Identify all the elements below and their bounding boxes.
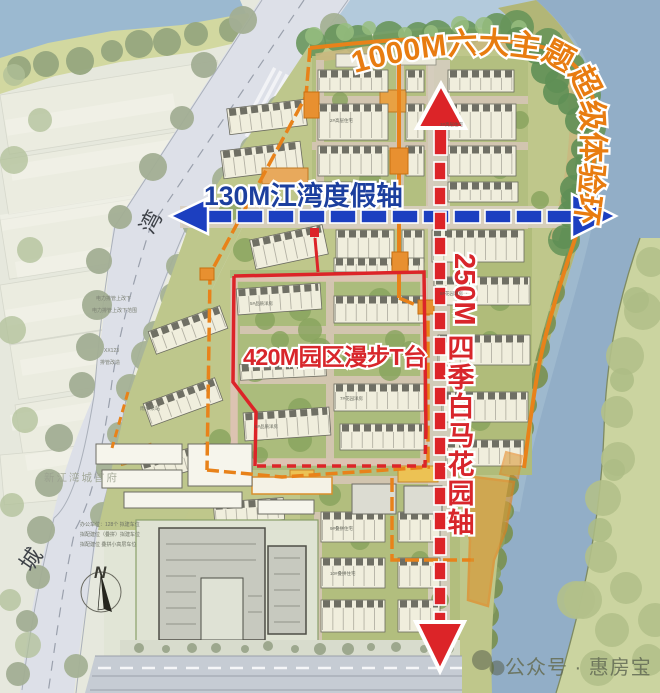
svg-text:花: 花 bbox=[448, 450, 475, 480]
svg-text:雨水泵站: 雨水泵站 bbox=[140, 405, 160, 412]
svg-text:拟配建位 叠拼小高层车位: 拟配建位 叠拼小高层车位 bbox=[80, 541, 136, 548]
svg-text:130M江湾度假轴: 130M江湾度假轴 bbox=[204, 181, 403, 211]
svg-text:9#叠拼住宅: 9#叠拼住宅 bbox=[330, 525, 354, 532]
svg-text:电力排管上改下: 电力排管上改下 bbox=[96, 295, 131, 302]
svg-text:马: 马 bbox=[448, 421, 475, 451]
svg-text:电力排管上改下范围: 电力排管上改下范围 bbox=[92, 307, 137, 314]
svg-text:2#高层住宅: 2#高层住宅 bbox=[330, 117, 354, 124]
svg-text:园: 园 bbox=[448, 479, 475, 509]
svg-text:季: 季 bbox=[448, 363, 475, 393]
svg-text:XX123: XX123 bbox=[104, 348, 119, 354]
svg-text:四: 四 bbox=[448, 334, 475, 364]
svg-text:办公车位：128个 拟建车位: 办公车位：128个 拟建车位 bbox=[80, 521, 140, 528]
svg-text:3#高层住宅: 3#高层住宅 bbox=[440, 121, 464, 128]
svg-text:8#花园洋房: 8#花园洋房 bbox=[440, 290, 464, 297]
svg-text:7#花园洋房: 7#花园洋房 bbox=[340, 395, 364, 402]
svg-text:6#品质洋房: 6#品质洋房 bbox=[255, 423, 279, 430]
svg-text:5#品质洋房: 5#品质洋房 bbox=[250, 300, 274, 307]
svg-text:新江湾城首府: 新江湾城首府 bbox=[44, 471, 119, 484]
svg-text:公众号 · 惠房宝: 公众号 · 惠房宝 bbox=[505, 656, 652, 679]
svg-text:250M: 250M bbox=[448, 253, 480, 326]
svg-text:白: 白 bbox=[448, 391, 475, 422]
svg-text:420M园区漫步T台: 420M园区漫步T台 bbox=[243, 343, 426, 370]
svg-text:排管改造: 排管改造 bbox=[100, 359, 120, 366]
svg-text:拟配建位（叠拼）拟建车位: 拟配建位（叠拼）拟建车位 bbox=[80, 531, 140, 538]
svg-text:轴: 轴 bbox=[448, 508, 475, 538]
svg-text:10#叠拼住宅: 10#叠拼住宅 bbox=[330, 570, 356, 577]
